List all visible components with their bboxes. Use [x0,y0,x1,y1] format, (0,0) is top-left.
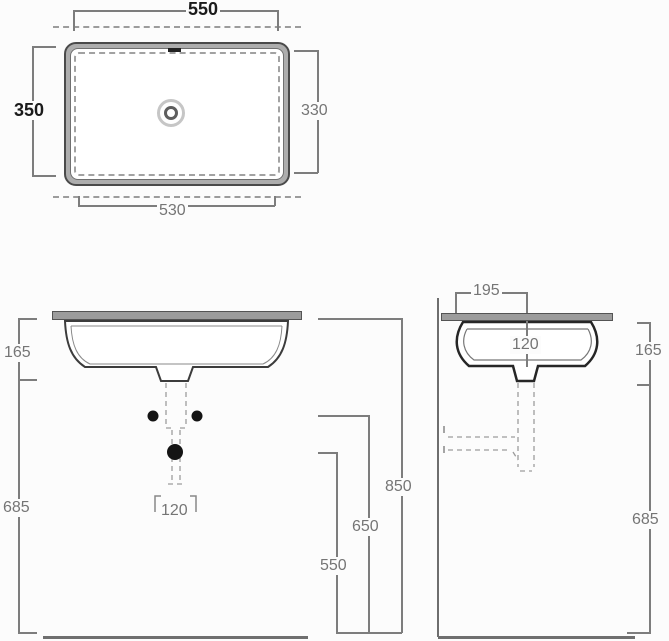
fixing-hole-right [192,411,203,422]
dim-line-worktop-height [401,318,403,633]
waste-outlet-dot [167,444,183,460]
dim-tick [294,172,318,174]
dim-extension [78,196,80,206]
dim-label-fixing-spacing: 120 [159,502,190,520]
dim-label-overall-depth: 350 [12,101,46,120]
dim-line-waste-centerline [526,292,528,367]
dim-extension [274,196,276,206]
side-worktop-slab [441,313,613,321]
dim-tick [32,175,56,177]
dim-line-trap-height-top [318,452,337,454]
front-worktop-slab [52,311,302,320]
drain-icon [157,99,185,127]
dim-tick [637,384,651,386]
dim-tick [32,46,56,48]
dim-extension [455,292,457,313]
dim-label-fixing-height: 650 [350,518,381,536]
dim-label-basin-depth: 165 [2,344,33,362]
technical-drawing-basin: 550 350 330 530 [0,0,669,641]
dim-label-trap-height: 550 [318,557,349,575]
dim-label-waste-offset: 195 [471,282,502,300]
dim-tick [18,379,37,381]
dim-tick [627,632,651,634]
dim-label-waste-height: 685 [1,499,32,517]
fixing-hole-left [148,411,159,422]
dim-line-fixing-height-top [318,415,369,417]
dim-label-side-basin-depth: 165 [633,342,664,360]
drain-hole-icon [164,106,178,120]
dim-label-cutout-width: 530 [157,202,188,220]
dim-label-side-waste-height: 685 [630,511,661,529]
dim-label-worktop-height: 850 [383,478,414,496]
dim-label-waste-drop: 120 [510,336,541,354]
dim-line-overall-width [73,10,278,12]
side-waste-pipe-dashed [448,383,534,471]
dim-tick [294,50,318,52]
plan-view-center-mark [168,48,181,52]
dim-line-left-heights [18,318,20,633]
dim-label-overall-width: 550 [186,0,220,19]
dim-line-trap-height [336,452,338,633]
front-waste-pipe-dashed [166,383,186,484]
dim-line-worktop-height-top [318,318,402,320]
dim-tick [637,322,651,324]
dim-tick [18,632,37,634]
dim-line-right-heights [649,322,651,633]
front-basin-outline [65,321,288,381]
dim-tick [18,318,37,320]
dim-extension-right [277,10,279,31]
dim-label-cutout-depth: 330 [299,102,330,120]
dim-baseline [336,632,402,634]
dim-extension-left [73,10,75,31]
